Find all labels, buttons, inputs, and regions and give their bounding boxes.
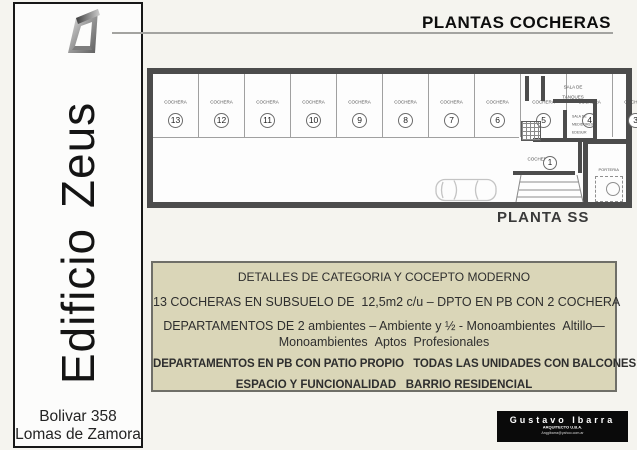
architect-card: Gustavo Ibarra ARQUITECTO U.B.A. Arqgiba…: [497, 411, 628, 442]
stall-label: COCHERA: [348, 100, 371, 105]
parking-stall-3: COCHERA3: [613, 74, 637, 137]
stall-label: COCHERA: [302, 100, 325, 105]
stall-label: COCHERA: [164, 100, 187, 105]
details-line-2: 13 COCHERAS EN SUBSUELO DE 12,5m2 c/u – …: [153, 295, 615, 309]
pump-circle-icon: [606, 182, 620, 196]
parking-stall-12: COCHERA12: [199, 74, 245, 137]
address-line-1: Bolivar 358: [15, 408, 141, 425]
stall-number: 11: [260, 113, 275, 128]
details-line-5: DEPARTAMENTOS EN PB CON PATIO PROPIO TOD…: [153, 358, 615, 370]
parking-stall-8: COCHERA8: [383, 74, 429, 137]
ramp-icon: [508, 175, 588, 203]
car-icon: [435, 177, 498, 203]
building-name-vertical: Edificio Zeus: [52, 83, 104, 403]
stall-1-number: 1: [543, 156, 557, 170]
parking-stall-7: COCHERA7: [429, 74, 475, 137]
corridor-wall: [578, 140, 582, 173]
stair-shaft-wall-right: [541, 76, 545, 101]
parking-stall-11: COCHERA11: [245, 74, 291, 137]
pump-room-wall-top: [583, 139, 626, 144]
stall-label: COCHERA: [210, 100, 233, 105]
details-line-1: DETALLES DE CATEGORIA Y COCEPTO MODERNO: [153, 270, 615, 284]
stall-label: COCHERA: [394, 100, 417, 105]
stall-label: COCHERA: [624, 100, 637, 105]
details-line-4: Monoambientes Aptos Profesionales: [153, 335, 615, 349]
floor-plan: COCHERA13 COCHERA12 COCHERA11 COCHERA10 …: [147, 68, 632, 208]
small-room-label: PORTERIA: [591, 165, 621, 174]
stall-number: 7: [444, 113, 459, 128]
stall-label: COCHERA: [256, 100, 279, 105]
stall-number: 12: [214, 113, 229, 128]
details-box: DETALLES DE CATEGORIA Y COCEPTO MODERNO …: [151, 261, 617, 392]
architect-name: Gustavo Ibarra: [497, 415, 628, 425]
address-block: Bolivar 358 Lomas de Zamora: [15, 408, 141, 443]
stall-number: 10: [306, 113, 321, 128]
stall-label: COCHERA: [486, 100, 509, 105]
stall-number: 8: [398, 113, 413, 128]
parking-stall-6: COCHERA6: [475, 74, 521, 137]
architect-title: ARQUITECTO U.B.A.: [530, 425, 596, 428]
flyer-page: Edificio Zeus Bolivar 358 Lomas de Zamor…: [0, 0, 637, 450]
stair-icon: [521, 121, 541, 141]
sidebar: Edificio Zeus Bolivar 358 Lomas de Zamor…: [13, 2, 143, 448]
parking-stall-10: COCHERA10: [291, 74, 337, 137]
details-line-3: DEPARTAMENTOS DE 2 ambientes – Ambiente …: [153, 319, 615, 333]
meter-room-label: SALA DE MEDIDORES EDESUR: [565, 113, 593, 137]
stall-number: 3: [628, 113, 637, 128]
zeus-logo-icon: [62, 6, 108, 56]
page-title: PLANTAS COCHERAS: [422, 13, 611, 33]
parking-stall-row: COCHERA13 COCHERA12 COCHERA11 COCHERA10 …: [153, 74, 519, 138]
tank-room-label: SALA DE TANQUES: [548, 82, 598, 103]
stall-number: 6: [490, 113, 505, 128]
address-line-2: Lomas de Zamora: [15, 426, 141, 443]
architect-email: Arqgibarra@yahoo.com.ar: [533, 431, 592, 434]
parking-stall-13: COCHERA13: [153, 74, 199, 137]
parking-stall-9: COCHERA9: [337, 74, 383, 137]
details-line-6: ESPACIO Y FUNCIONALIDAD BARRIO RESIDENCI…: [153, 379, 615, 391]
stall-number: 9: [352, 113, 367, 128]
stall-label: COCHERA: [440, 100, 463, 105]
stall-number: 13: [168, 113, 183, 128]
stair-shaft-wall-left: [525, 76, 529, 101]
meter-room-wall-right: [593, 99, 597, 141]
plan-name-label: PLANTA SS: [497, 209, 589, 226]
